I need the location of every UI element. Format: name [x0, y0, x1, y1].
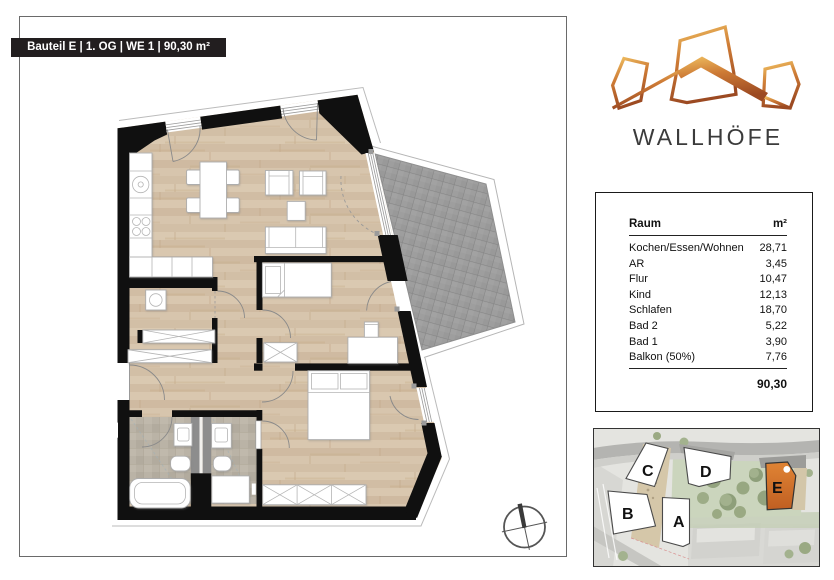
- svg-text:B: B: [622, 506, 634, 523]
- svg-text:E: E: [772, 480, 783, 497]
- svg-text:D: D: [700, 464, 712, 481]
- svg-text:A: A: [673, 514, 685, 531]
- svg-text:C: C: [642, 463, 654, 480]
